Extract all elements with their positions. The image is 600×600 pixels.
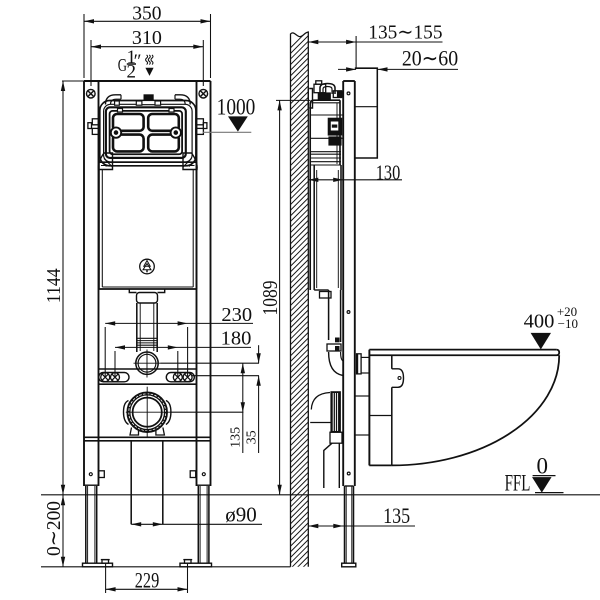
svg-text:−10: −10 xyxy=(558,316,578,331)
svg-text:1000: 1000 xyxy=(217,95,256,120)
svg-text:ø90: ø90 xyxy=(225,503,257,527)
svg-text:310: 310 xyxy=(132,27,162,49)
svg-text:230: 230 xyxy=(221,304,252,326)
svg-text:0: 0 xyxy=(536,454,548,479)
svg-text:1089: 1089 xyxy=(258,281,282,316)
svg-text:135: 135 xyxy=(383,503,410,528)
svg-text:″: ″ xyxy=(134,51,142,72)
svg-text:135: 135 xyxy=(229,427,244,448)
svg-text:400: 400 xyxy=(524,310,555,332)
svg-text:135∼155: 135∼155 xyxy=(368,22,442,44)
svg-text:130: 130 xyxy=(376,160,401,184)
svg-text:350: 350 xyxy=(132,3,161,24)
svg-text:FFL: FFL xyxy=(505,471,531,496)
svg-text:35: 35 xyxy=(244,430,259,444)
svg-text:229: 229 xyxy=(135,568,160,593)
svg-text:180: 180 xyxy=(221,328,252,350)
svg-text:20∼60: 20∼60 xyxy=(402,45,458,70)
svg-text:1144: 1144 xyxy=(43,268,65,303)
svg-text:0∼200: 0∼200 xyxy=(43,501,65,556)
